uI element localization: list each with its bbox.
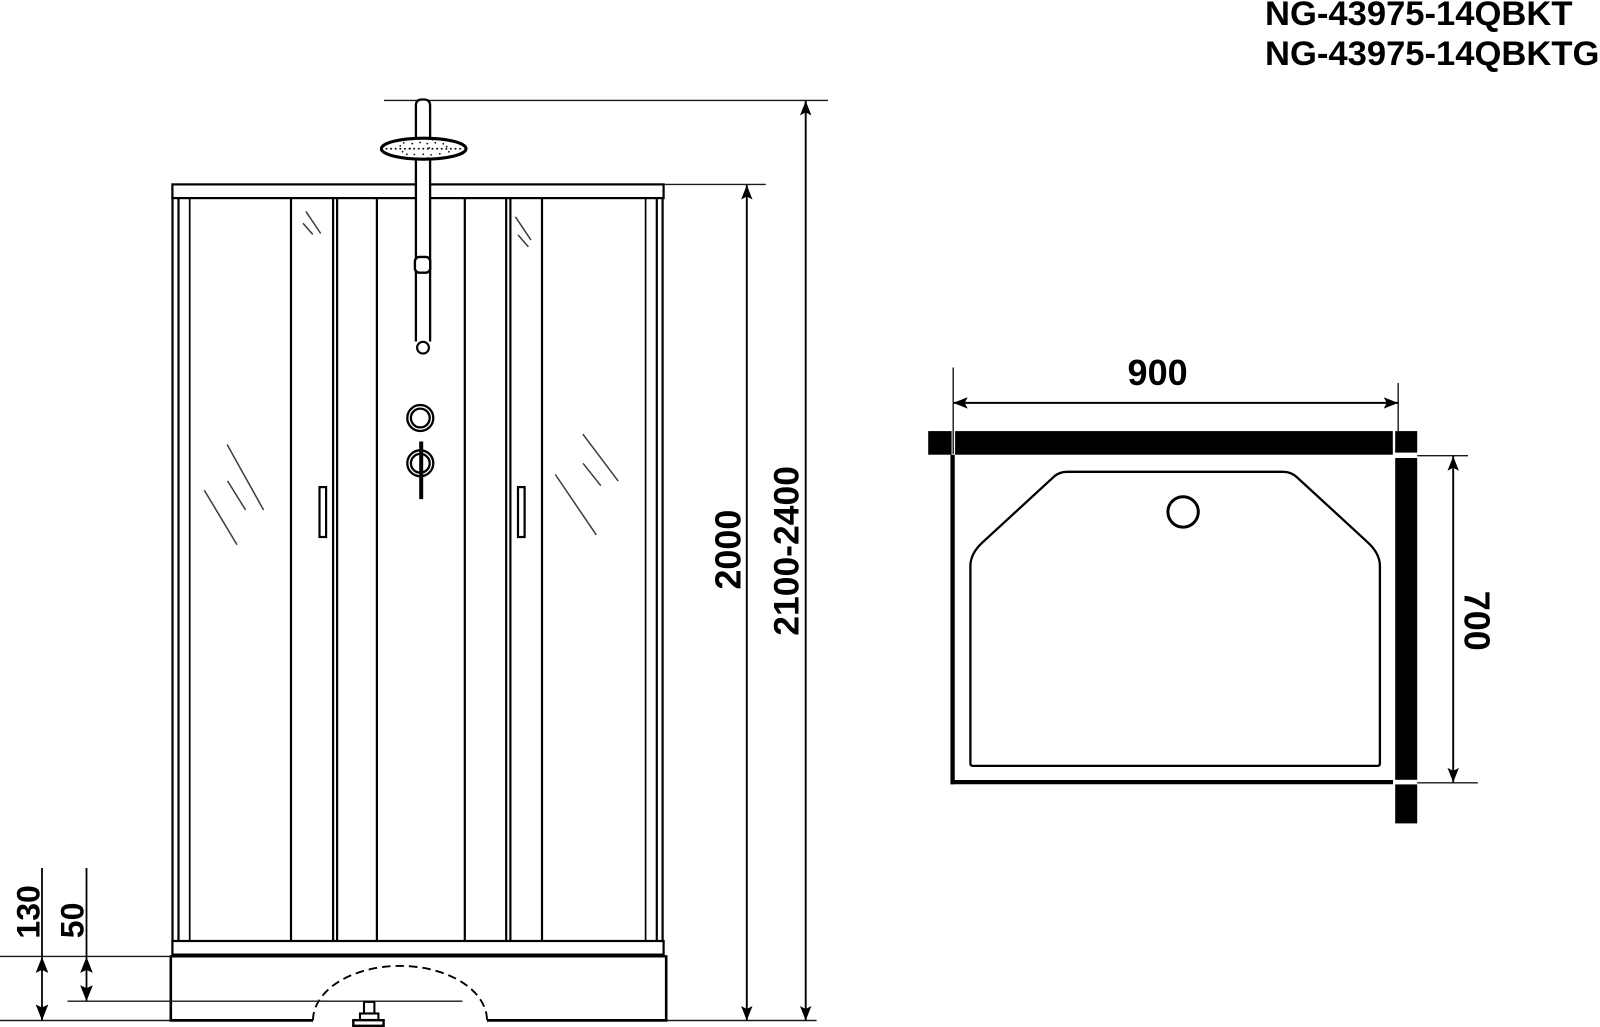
svg-text:2000: 2000 [708, 510, 749, 590]
svg-text:NG-43975-14QBKT: NG-43975-14QBKT [1265, 0, 1572, 33]
svg-text:700: 700 [1456, 591, 1497, 651]
svg-text:130: 130 [11, 885, 47, 938]
svg-text:50: 50 [55, 903, 91, 939]
svg-text:2100-2400: 2100-2400 [767, 466, 807, 636]
svg-text:900: 900 [1128, 352, 1188, 393]
svg-text:NG-43975-14QBKTG: NG-43975-14QBKTG [1265, 35, 1599, 73]
